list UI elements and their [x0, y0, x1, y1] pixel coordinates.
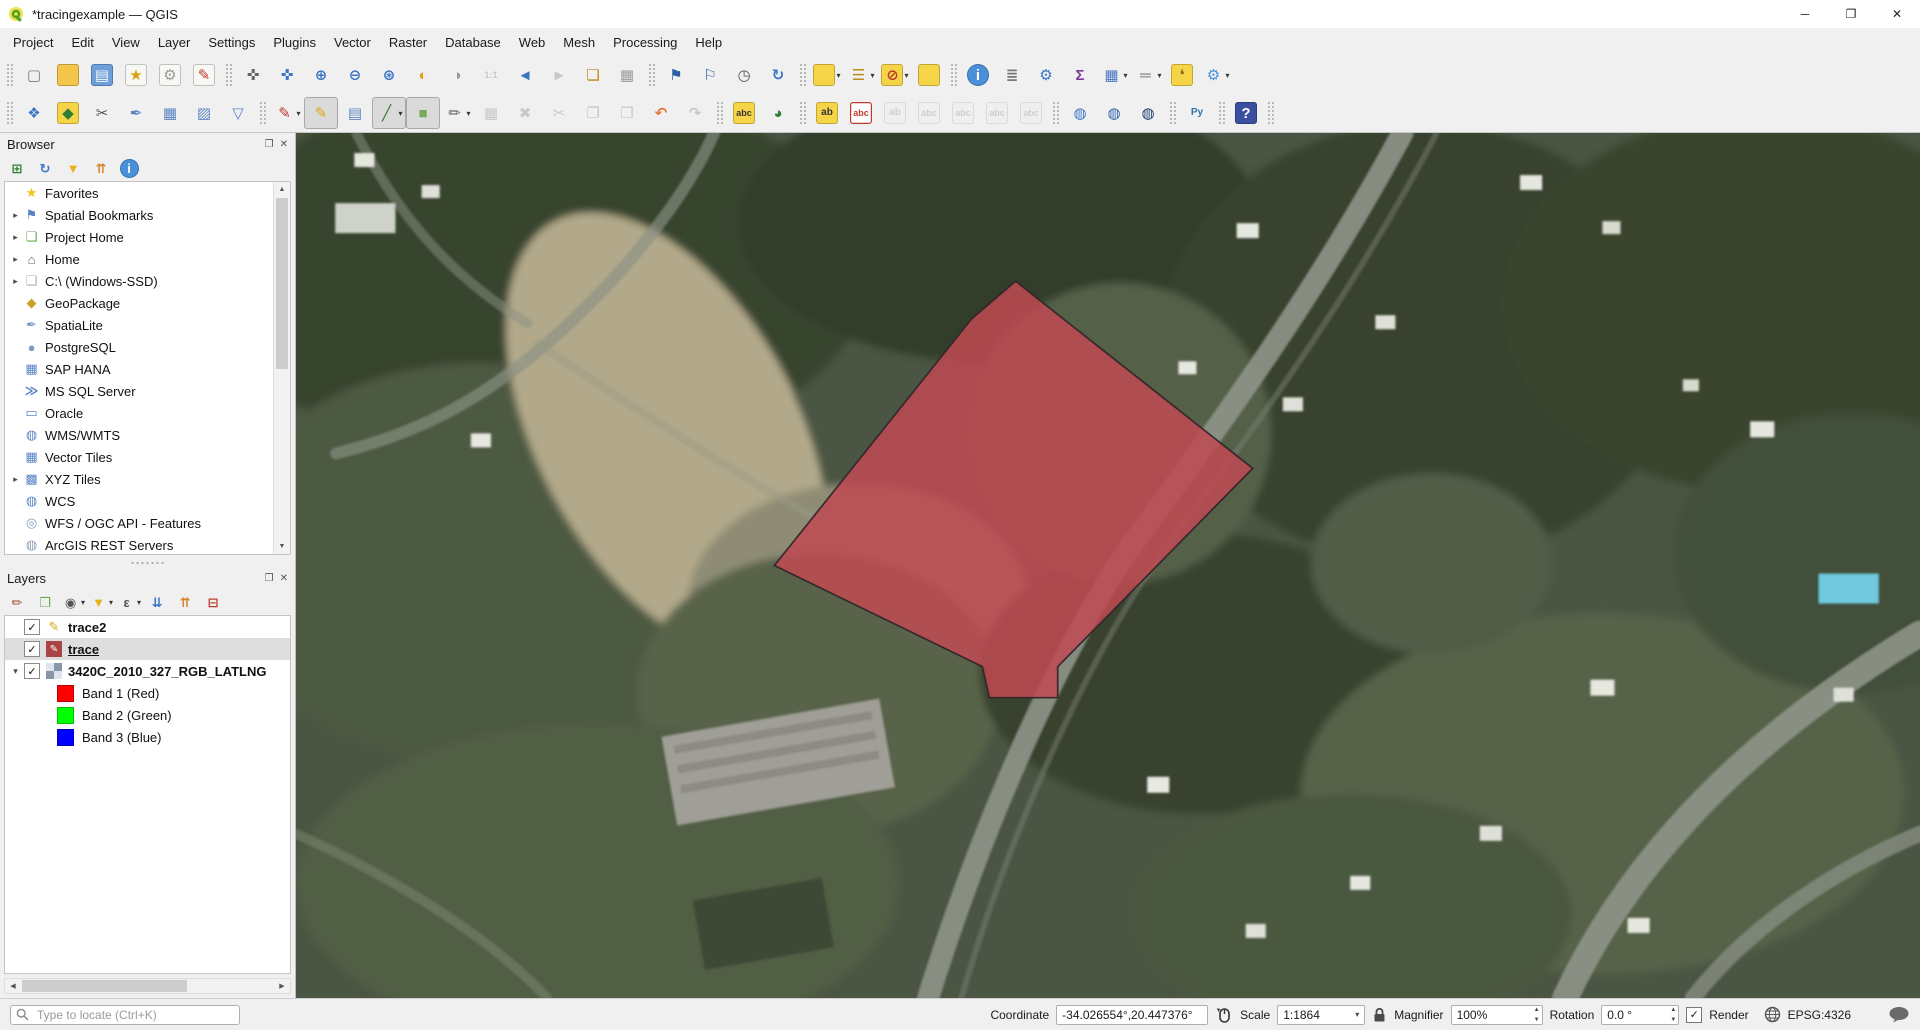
- save-layer-edits-icon: ▤: [344, 102, 366, 124]
- show-spatial-bookmarks-button[interactable]: ⚐: [693, 59, 727, 91]
- expand-arrow-icon[interactable]: ▸: [9, 254, 22, 265]
- move-label-button: abc: [946, 97, 980, 129]
- remove-layer-button[interactable]: ⊟: [199, 589, 227, 615]
- browser-properties-icon: i: [120, 159, 139, 178]
- redo-icon: ↷: [684, 102, 706, 124]
- menu-help[interactable]: Help: [686, 31, 731, 54]
- new-spatial-bookmark-icon: ⚑: [665, 64, 687, 86]
- browser-scrollbar[interactable]: ▲ ▼: [273, 182, 290, 554]
- show-layout-manager-button[interactable]: ⚙: [153, 59, 187, 91]
- cut-features-icon: ✂: [548, 102, 570, 124]
- browser-filter-button[interactable]: ▼: [59, 155, 87, 181]
- expand-arrow-icon[interactable]: ▸: [9, 276, 22, 287]
- new-geopackage-layer-button[interactable]: ◆: [51, 97, 85, 129]
- browser-scrollbar-thumb[interactable]: [276, 198, 288, 369]
- layers-toolbar: ✏❐◉▾▼▾ε▾⇊⇈⊟: [0, 589, 295, 615]
- open-attribute-table-dropdown[interactable]: ▾: [1123, 71, 1127, 80]
- zoom-full-extent-icon: ⊛: [378, 64, 400, 86]
- coordinate-value: -34.026554°,20.447376°: [1062, 1008, 1192, 1022]
- scale-dropdown-icon[interactable]: ▾: [1349, 1010, 1359, 1019]
- toolbar-handle: [648, 63, 655, 87]
- filter-by-expression-dropdown[interactable]: ▾: [137, 598, 141, 607]
- spatial-bookmarks-icon: ⚑: [22, 207, 41, 223]
- project-new-button[interactable]: ▢: [17, 59, 51, 91]
- measure-line-icon: ═: [1134, 64, 1156, 86]
- layer-label: 3420C_2010_327_RGB_LATLNG: [68, 664, 266, 679]
- filter-by-expression-button[interactable]: ε▾: [115, 589, 143, 615]
- processing-toolbox-button[interactable]: ⚙: [1029, 59, 1063, 91]
- select-features-by-value-icon: ☰: [847, 64, 869, 86]
- metasearch-catalog-icon: ◍: [1137, 102, 1159, 124]
- layer-item-trace2[interactable]: ✓✎trace2: [5, 616, 290, 638]
- scroll-down-icon[interactable]: ▼: [274, 539, 290, 554]
- style-manager-icon: ✎: [193, 64, 215, 86]
- menu-mesh[interactable]: Mesh: [554, 31, 604, 54]
- new-print-layout-button[interactable]: ★: [119, 59, 153, 91]
- pan-map-button[interactable]: ✜: [236, 59, 270, 91]
- browser-tree: ★Favorites▸⚑Spatial Bookmarks▸❏Project H…: [4, 181, 291, 555]
- cut-features-button: ✂: [542, 97, 576, 129]
- current-edits-button[interactable]: ✎▾: [270, 97, 304, 129]
- highlight-pinned-labels-icon: abc: [850, 102, 872, 124]
- dock-splitter[interactable]: [0, 559, 295, 567]
- new-map-view-button[interactable]: ❏: [576, 59, 610, 91]
- browser-item-favorites[interactable]: ★Favorites: [5, 182, 290, 204]
- project-save-button[interactable]: ▤: [85, 59, 119, 91]
- highlight-pinned-labels-button[interactable]: abc: [844, 97, 878, 129]
- lock-scale-icon[interactable]: [1372, 1007, 1387, 1023]
- run-feature-action-icon: ⚙: [1202, 64, 1224, 86]
- show-hide-labels-button: abc: [912, 97, 946, 129]
- new-spatialite-layer-icon: ✒: [125, 102, 147, 124]
- filter-legend-button[interactable]: ▼▾: [87, 589, 115, 615]
- browser-item-oracle[interactable]: ▭Oracle: [5, 402, 290, 424]
- browser-float-button[interactable]: ❐: [265, 139, 274, 150]
- show-spatial-bookmarks-icon: ⚐: [699, 64, 721, 86]
- raster-layer-icon: [46, 663, 62, 679]
- browser-properties-button[interactable]: i: [115, 155, 143, 181]
- vector-tiles-icon: ▦: [22, 449, 41, 465]
- filter-by-expression-icon: ε: [117, 593, 136, 612]
- layers-panel-header: Layers ❐ ✕: [0, 567, 295, 589]
- browser-item-ms-sql-server[interactable]: ≫MS SQL Server: [5, 380, 290, 402]
- browser-item-label: WMS/WMTS: [45, 428, 120, 443]
- browser-item-spatialite[interactable]: ✒SpatiaLite: [5, 314, 290, 336]
- map-tips-icon: ❛: [1171, 64, 1193, 86]
- menu-edit[interactable]: Edit: [62, 31, 102, 54]
- coordinate-input[interactable]: -34.026554°,20.447376°: [1056, 1005, 1208, 1025]
- search-web-services-button[interactable]: ◍: [1097, 97, 1131, 129]
- layer-item-band-1-red[interactable]: Band 1 (Red): [5, 682, 290, 704]
- crs-globe-icon[interactable]: [1764, 1006, 1781, 1023]
- digitize-with-segment-icon: ╱: [375, 102, 397, 124]
- current-edits-dropdown[interactable]: ▾: [296, 109, 300, 118]
- layer-visibility-checkbox[interactable]: ✓: [24, 619, 40, 635]
- collapse-all-layers-button[interactable]: ⇈: [171, 589, 199, 615]
- map-tips-button[interactable]: ❛: [1165, 59, 1199, 91]
- manage-map-themes-button[interactable]: ◉▾: [59, 589, 87, 615]
- browser-item-label: Spatial Bookmarks: [45, 208, 153, 223]
- browser-refresh-icon: ↻: [36, 159, 55, 178]
- toolbar-handle: [1052, 101, 1059, 125]
- vertex-tool-dropdown[interactable]: ▾: [466, 109, 470, 118]
- c-windows-ssd-icon: ❏: [22, 273, 41, 289]
- browser-item-label: Oracle: [45, 406, 83, 421]
- current-edits-icon: ✎: [273, 102, 295, 124]
- processing-toolbox-icon: ⚙: [1035, 64, 1057, 86]
- new-3d-map-view-button[interactable]: ▦: [610, 59, 644, 91]
- add-polygon-feature-button[interactable]: ■: [406, 97, 440, 129]
- menu-project[interactable]: Project: [4, 31, 62, 54]
- show-statistics-button[interactable]: Σ: [1063, 59, 1097, 91]
- filter-legend-icon: ▼: [89, 593, 108, 612]
- deselect-features-dropdown[interactable]: ▾: [904, 71, 908, 80]
- wms-wmts-icon: ◍: [22, 427, 41, 443]
- browser-item-home[interactable]: ▸⌂Home: [5, 248, 290, 270]
- editing-layer-icon: ✎: [46, 641, 62, 657]
- show-statistics-icon: Σ: [1069, 64, 1091, 86]
- data-source-manager-icon: ❖: [23, 102, 45, 124]
- change-label-icon: abc: [1020, 102, 1042, 124]
- identify-features-icon: i: [967, 64, 989, 86]
- new-virtual-layer-button[interactable]: ▨: [187, 97, 221, 129]
- browser-item-xyz-tiles[interactable]: ▸▩XYZ Tiles: [5, 468, 290, 490]
- extent-toggle-icon[interactable]: [1215, 1006, 1233, 1024]
- toolbar-handle: [1267, 101, 1274, 125]
- spatialite-icon: ✒: [22, 317, 41, 333]
- modify-attributes-button: ▦: [474, 97, 508, 129]
- geopackage-icon: ◆: [22, 295, 41, 311]
- add-group-button[interactable]: ❐: [31, 589, 59, 615]
- vertex-tool-button[interactable]: ✏▾: [440, 97, 474, 129]
- minimize-button[interactable]: ─: [1782, 0, 1828, 28]
- new-shapefile-layer-button[interactable]: ✂: [85, 97, 119, 129]
- magnifier-label: Magnifier: [1394, 1008, 1443, 1022]
- zoom-last-button[interactable]: ◄: [508, 59, 542, 91]
- add-web-service-layer-icon: ◍: [1069, 102, 1091, 124]
- browser-filter-icon: ▼: [64, 159, 83, 178]
- toolbar-handle: [799, 101, 806, 125]
- browser-item-label: Favorites: [45, 186, 98, 201]
- add-polygon-feature-icon: ■: [412, 102, 434, 124]
- open-attribute-table-icon: ▦: [1100, 64, 1122, 86]
- layers-panel-title: Layers: [7, 571, 46, 586]
- save-layer-edits-button[interactable]: ▤: [338, 97, 372, 129]
- toolbar-handle: [225, 63, 232, 87]
- deselect-features-button[interactable]: ⊘▾: [878, 59, 912, 91]
- oracle-icon: ▭: [22, 405, 41, 421]
- statusbar: Coordinate -34.026554°,20.447376° Scale …: [0, 998, 1920, 1030]
- show-layout-manager-icon: ⚙: [159, 64, 181, 86]
- identify-features-button[interactable]: i: [961, 59, 995, 91]
- expand-arrow-icon[interactable]: ▸: [9, 474, 22, 485]
- browser-collapse-all-button[interactable]: ⇈: [87, 155, 115, 181]
- statistical-summary-icon: ≣: [1001, 64, 1023, 86]
- menu-view[interactable]: View: [103, 31, 149, 54]
- ms-sql-server-icon: ≫: [22, 383, 41, 399]
- maximize-button[interactable]: ❐: [1828, 0, 1874, 28]
- new-3d-map-view-icon: ▦: [616, 64, 638, 86]
- wcs-icon: ◍: [22, 493, 41, 509]
- zoom-next-icon: ►: [548, 64, 570, 86]
- titlebar: *tracingexample — QGIS ─ ❐ ✕: [0, 0, 1920, 28]
- browser-item-wfs-ogc-api-features[interactable]: ◎WFS / OGC API - Features: [5, 512, 290, 534]
- layer-item-band-3-blue[interactable]: Band 3 (Blue): [5, 726, 290, 748]
- browser-item-label: Project Home: [45, 230, 124, 245]
- deselect-features-icon: ⊘: [881, 64, 903, 86]
- crs-value: EPSG:4326: [1788, 1008, 1851, 1022]
- qgis-window: *tracingexample — QGIS ─ ❐ ✕ ProjectEdit…: [0, 0, 1920, 1030]
- help-contents-icon: ?: [1235, 102, 1257, 124]
- pin-unpin-labels-button: ab: [878, 97, 912, 129]
- zoom-to-selection-button[interactable]: ◐: [406, 59, 440, 91]
- digitize-with-segment-dropdown[interactable]: ▾: [398, 109, 402, 118]
- locate-input[interactable]: [10, 1005, 240, 1025]
- zoom-to-selection-icon: ◐: [412, 64, 434, 86]
- pin-labels-icon: ab: [816, 102, 838, 124]
- temporal-controller-icon: ◷: [733, 64, 755, 86]
- show-hide-labels-icon: abc: [918, 102, 940, 124]
- new-mesh-layer-button[interactable]: ▽: [221, 97, 255, 129]
- browser-add-selected-layers-button[interactable]: ⊞: [3, 155, 31, 181]
- paste-features-button: ❒: [610, 97, 644, 129]
- select-all-features-icon: [918, 64, 940, 86]
- refresh-map-icon: ↻: [767, 64, 789, 86]
- scroll-left-icon[interactable]: ◀: [5, 982, 21, 990]
- zoom-to-layer-button[interactable]: ◑: [440, 59, 474, 91]
- search-icon: [16, 1008, 29, 1021]
- toolbar-handle: [716, 101, 723, 125]
- expand-arrow-icon[interactable]: ▸: [9, 232, 22, 243]
- rotation-label: Rotation: [1550, 1008, 1595, 1022]
- browser-item-vector-tiles[interactable]: ▦Vector Tiles: [5, 446, 290, 468]
- zoom-out-button[interactable]: ⊖: [338, 59, 372, 91]
- menu-web[interactable]: Web: [510, 31, 555, 54]
- layer-labeling-options-button[interactable]: abc: [727, 97, 761, 129]
- browser-item-project-home[interactable]: ▸❏Project Home: [5, 226, 290, 248]
- paste-features-icon: ❒: [616, 102, 638, 124]
- open-layer-styling-panel-icon: ✏: [8, 593, 27, 612]
- scale-combo[interactable]: 1:1864 ▾: [1277, 1005, 1365, 1025]
- layer-item-trace[interactable]: ✓✎trace: [5, 638, 290, 660]
- band-label: Band 3 (Blue): [82, 730, 162, 745]
- new-spatialite-layer-button[interactable]: ✒: [119, 97, 153, 129]
- menubar: ProjectEditViewLayerSettingsPluginsVecto…: [0, 28, 1920, 56]
- statistical-summary-button[interactable]: ≣: [995, 59, 1029, 91]
- browser-panel-header: Browser ❐ ✕: [0, 133, 295, 155]
- wfs-ogc-api-features-icon: ◎: [22, 515, 41, 531]
- layers-panel: Layers ❐ ✕ ✏❐◉▾▼▾ε▾⇊⇈⊟ ✓✎trace2✓✎trace▾✓…: [0, 567, 295, 998]
- sap-hana-icon: ▦: [22, 361, 41, 377]
- pin-labels-button[interactable]: ab: [810, 97, 844, 129]
- open-layer-styling-panel-button[interactable]: ✏: [3, 589, 31, 615]
- coordinate-label: Coordinate: [990, 1008, 1049, 1022]
- render-checkbox[interactable]: ✓: [1686, 1007, 1702, 1023]
- filter-legend-dropdown[interactable]: ▾: [109, 598, 113, 607]
- collapse-all-layers-icon: ⇈: [176, 593, 195, 612]
- map-canvas[interactable]: [296, 133, 1920, 998]
- select-all-features-button[interactable]: [912, 59, 946, 91]
- browser-item-c-windows-ssd[interactable]: ▸❏C:\ (Windows-SSD): [5, 270, 290, 292]
- band-label: Band 2 (Green): [82, 708, 172, 723]
- project-open-icon: [57, 64, 79, 86]
- browser-item-label: ArcGIS REST Servers: [45, 538, 173, 553]
- new-mesh-layer-icon: ▽: [227, 102, 249, 124]
- pan-to-selection-icon: ✜: [276, 64, 298, 86]
- measure-line-button[interactable]: ═▾: [1131, 59, 1165, 91]
- manage-map-themes-icon: ◉: [61, 593, 80, 612]
- browser-item-spatial-bookmarks[interactable]: ▸⚑Spatial Bookmarks: [5, 204, 290, 226]
- select-features-by-value-button[interactable]: ☰▾: [844, 59, 878, 91]
- undo-icon: ↶: [650, 102, 672, 124]
- browser-close-button[interactable]: ✕: [280, 139, 288, 150]
- layer-labeling-options-icon: abc: [733, 102, 755, 124]
- log-messages-icon[interactable]: [1888, 1006, 1910, 1023]
- delete-selected-button: ✖: [508, 97, 542, 129]
- temporal-controller-button[interactable]: ◷: [727, 59, 761, 91]
- rotate-label-button: abc: [980, 97, 1014, 129]
- layers-scrollbar-thumb[interactable]: [22, 980, 187, 992]
- browser-collapse-all-icon: ⇈: [92, 159, 111, 178]
- toolbar-row-1: ▢▤★⚙✎✜✜⊕⊖⊛◐◑1:1◄►❏▦⚑⚐◷↻▾☰▾⊘▾i≣⚙Σ▦▾═▾❛⚙▾: [0, 56, 1920, 94]
- data-source-manager-button[interactable]: ❖: [17, 97, 51, 129]
- new-temporary-scratch-layer-button[interactable]: ▦: [153, 97, 187, 129]
- layer-item-band-2-green[interactable]: Band 2 (Green): [5, 704, 290, 726]
- new-map-view-icon: ❏: [582, 64, 604, 86]
- run-feature-action-dropdown[interactable]: ▾: [1225, 71, 1229, 80]
- expand-arrow-icon[interactable]: ▾: [9, 666, 22, 677]
- open-attribute-table-button[interactable]: ▦▾: [1097, 59, 1131, 91]
- browser-item-postgresql[interactable]: ●PostgreSQL: [5, 336, 290, 358]
- help-contents-button[interactable]: ?: [1229, 97, 1263, 129]
- zoom-out-icon: ⊖: [344, 64, 366, 86]
- layer-visibility-checkbox[interactable]: ✓: [24, 663, 40, 679]
- zoom-full-extent-button[interactable]: ⊛: [372, 59, 406, 91]
- browser-item-label: PostgreSQL: [45, 340, 116, 355]
- menu-settings[interactable]: Settings: [199, 31, 264, 54]
- browser-item-label: WFS / OGC API - Features: [45, 516, 201, 531]
- metasearch-catalog-button[interactable]: ◍: [1131, 97, 1165, 129]
- browser-item-geopackage[interactable]: ◆GeoPackage: [5, 292, 290, 314]
- toolbar-handle: [1218, 101, 1225, 125]
- layer-visibility-checkbox[interactable]: ✓: [24, 641, 40, 657]
- select-features-dropdown[interactable]: ▾: [836, 71, 840, 80]
- layers-horizontal-scrollbar[interactable]: ◀ ▶: [4, 978, 291, 994]
- postgresql-icon: ●: [22, 340, 41, 355]
- zoom-last-icon: ◄: [514, 64, 536, 86]
- select-features-icon: [813, 64, 835, 86]
- expand-arrow-icon[interactable]: ▸: [9, 210, 22, 221]
- favorites-icon: ★: [22, 185, 41, 201]
- band-label: Band 1 (Red): [82, 686, 159, 701]
- scroll-right-icon[interactable]: ▶: [274, 982, 290, 990]
- refresh-map-button[interactable]: ↻: [761, 59, 795, 91]
- layer-diagram-options-icon: ◕: [767, 102, 789, 124]
- browser-item-label: Vector Tiles: [45, 450, 112, 465]
- toolbar-row-2: ❖◆✂✒▦▨▽✎▾✎▤╱▾■✏▾▦✖✂❐❒↶↷abc◕ababcababcabc…: [0, 94, 1920, 133]
- remove-layer-icon: ⊟: [204, 593, 223, 612]
- vertex-tool-icon: ✏: [443, 102, 465, 124]
- select-features-button[interactable]: ▾: [810, 59, 844, 91]
- zoom-in-button[interactable]: ⊕: [304, 59, 338, 91]
- rotation-value: 0.0 °: [1607, 1008, 1632, 1022]
- select-features-by-value-dropdown[interactable]: ▾: [870, 71, 874, 80]
- undo-button[interactable]: ↶: [644, 97, 678, 129]
- browser-item-arcgis-rest-servers[interactable]: ◍ArcGIS REST Servers: [5, 534, 290, 555]
- layers-close-button[interactable]: ✕: [280, 573, 288, 584]
- left-dock: Browser ❐ ✕ ⊞↻▼⇈i ★Favorites▸⚑Spatial Bo…: [0, 133, 296, 998]
- manage-map-themes-dropdown[interactable]: ▾: [81, 598, 85, 607]
- browser-item-wms-wmts[interactable]: ◍WMS/WMTS: [5, 424, 290, 446]
- magnifier-spin[interactable]: 100% ▲▼: [1451, 1005, 1543, 1025]
- measure-line-dropdown[interactable]: ▾: [1157, 71, 1161, 80]
- browser-add-selected-layers-icon: ⊞: [8, 159, 27, 178]
- scroll-up-icon[interactable]: ▲: [274, 182, 290, 197]
- project-open-button[interactable]: [51, 59, 85, 91]
- menu-plugins[interactable]: Plugins: [264, 31, 325, 54]
- toolbar-handle: [1169, 101, 1176, 125]
- zoom-in-icon: ⊕: [310, 64, 332, 86]
- menu-processing[interactable]: Processing: [604, 31, 686, 54]
- modify-attributes-icon: ▦: [480, 102, 502, 124]
- scale-label: Scale: [1240, 1008, 1270, 1022]
- pan-to-selection-button[interactable]: ✜: [270, 59, 304, 91]
- close-button[interactable]: ✕: [1874, 0, 1920, 28]
- browser-toolbar: ⊞↻▼⇈i: [0, 155, 295, 181]
- layer-item-3420c-2010-327-rgb-latlng[interactable]: ▾✓3420C_2010_327_RGB_LATLNG: [5, 660, 290, 682]
- layer-diagram-options-button[interactable]: ◕: [761, 97, 795, 129]
- zoom-to-layer-icon: ◑: [446, 64, 468, 86]
- toggle-editing-button[interactable]: ✎: [304, 97, 338, 129]
- zoom-native-resolution-button: 1:1: [474, 59, 508, 91]
- magnifier-spin-arrows[interactable]: ▲▼: [1534, 1007, 1540, 1023]
- browser-panel-title: Browser: [7, 137, 55, 152]
- expand-all-layers-button[interactable]: ⇊: [143, 589, 171, 615]
- rotation-spin[interactable]: 0.0 ° ▲▼: [1601, 1005, 1679, 1025]
- menu-vector[interactable]: Vector: [325, 31, 380, 54]
- python-console-button[interactable]: Py: [1180, 97, 1214, 129]
- menu-raster[interactable]: Raster: [380, 31, 436, 54]
- browser-item-sap-hana[interactable]: ▦SAP HANA: [5, 358, 290, 380]
- layers-float-button[interactable]: ❐: [265, 573, 274, 584]
- project-save-icon: ▤: [91, 64, 113, 86]
- pan-map-icon: ✜: [242, 64, 264, 86]
- new-print-layout-icon: ★: [125, 64, 147, 86]
- style-manager-button[interactable]: ✎: [187, 59, 221, 91]
- zoom-next-button: ►: [542, 59, 576, 91]
- redo-button: ↷: [678, 97, 712, 129]
- browser-refresh-button[interactable]: ↻: [31, 155, 59, 181]
- run-feature-action-button[interactable]: ⚙▾: [1199, 59, 1233, 91]
- new-spatial-bookmark-button[interactable]: ⚑: [659, 59, 693, 91]
- add-web-service-layer-button[interactable]: ◍: [1063, 97, 1097, 129]
- project-home-icon: ❏: [22, 229, 41, 245]
- rotation-spin-arrows[interactable]: ▲▼: [1670, 1007, 1676, 1023]
- project-new-icon: ▢: [23, 64, 45, 86]
- band-color-swatch: [57, 685, 74, 702]
- home-icon: ⌂: [22, 252, 41, 267]
- zoom-native-resolution-icon: 1:1: [480, 64, 502, 86]
- digitize-with-segment-button[interactable]: ╱▾: [372, 97, 406, 129]
- toolbar-handle: [6, 63, 13, 87]
- menu-layer[interactable]: Layer: [149, 31, 200, 54]
- browser-item-label: MS SQL Server: [45, 384, 136, 399]
- menu-database[interactable]: Database: [436, 31, 510, 54]
- toolbar-handle: [259, 101, 266, 125]
- browser-item-label: SpatiaLite: [45, 318, 103, 333]
- browser-item-label: GeoPackage: [45, 296, 120, 311]
- browser-item-wcs[interactable]: ◍WCS: [5, 490, 290, 512]
